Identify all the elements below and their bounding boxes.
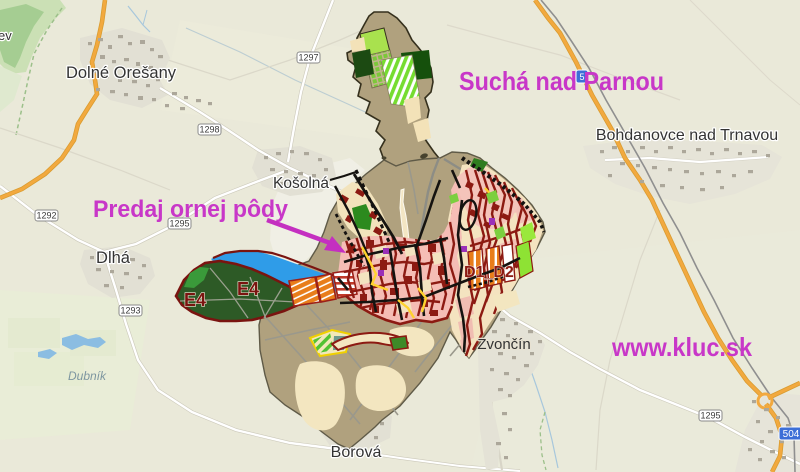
svg-text:E4: E4 bbox=[184, 290, 206, 310]
svg-text:1295: 1295 bbox=[700, 411, 720, 421]
svg-text:1297: 1297 bbox=[298, 53, 318, 63]
svg-text:Bohdanovce nad Trnavou: Bohdanovce nad Trnavou bbox=[596, 127, 778, 144]
svg-text:ev: ev bbox=[0, 28, 12, 43]
svg-text:Predaj ornej pôdy: Predaj ornej pôdy bbox=[93, 196, 289, 223]
svg-text:E4: E4 bbox=[237, 279, 259, 299]
svg-text:Košolná: Košolná bbox=[273, 175, 329, 192]
svg-text:Zvončín: Zvončín bbox=[477, 336, 530, 353]
svg-text:1292: 1292 bbox=[36, 211, 56, 221]
svg-text:Dolné Orešany: Dolné Orešany bbox=[66, 64, 177, 82]
svg-text:Borová: Borová bbox=[331, 444, 382, 461]
svg-text:Suchá nad Parnou: Suchá nad Parnou bbox=[459, 66, 664, 96]
svg-text:1293: 1293 bbox=[120, 306, 140, 316]
svg-text:1298: 1298 bbox=[199, 125, 219, 135]
svg-text:504: 504 bbox=[783, 429, 800, 440]
svg-text:D1_D2: D1_D2 bbox=[464, 264, 514, 281]
svg-text:Dlhá: Dlhá bbox=[96, 249, 131, 267]
svg-text:www.kluc.sk: www.kluc.sk bbox=[611, 332, 752, 362]
svg-text:Dubník: Dubník bbox=[68, 369, 107, 383]
